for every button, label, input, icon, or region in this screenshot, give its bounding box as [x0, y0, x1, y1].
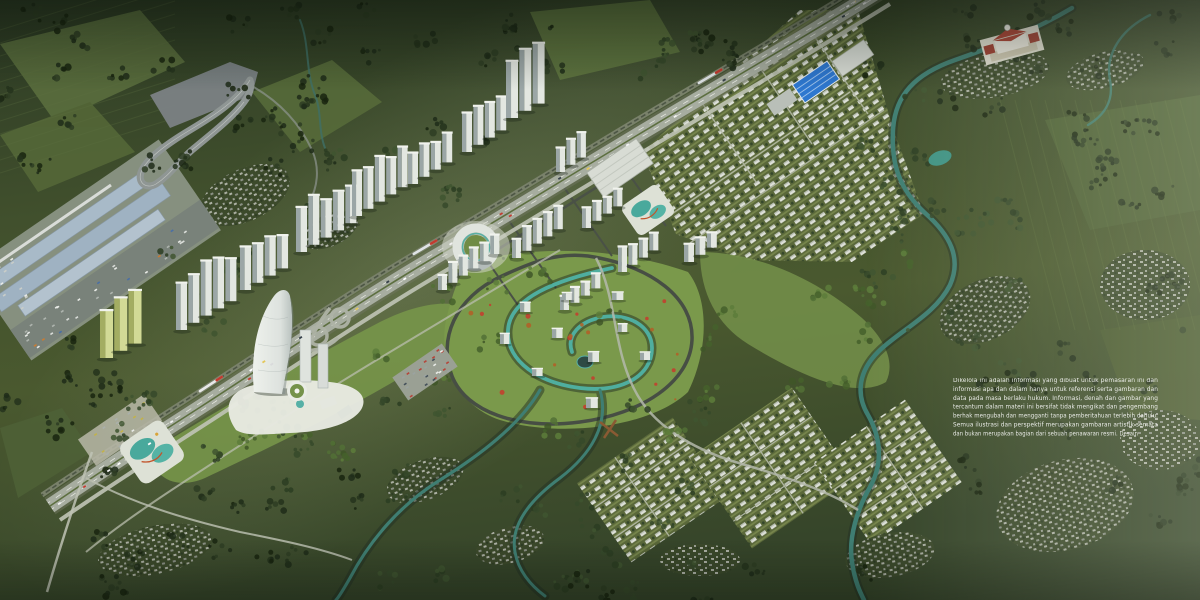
disclaimer-line: berhak mengubah dan mengganti tanpa pemb… — [953, 414, 1158, 420]
disclaimer-line: Semua ilustrasi dan perspektif merupakan… — [953, 423, 1158, 429]
disclaimer-line: Dikelola ini adalah informasi yang dibua… — [953, 378, 1158, 384]
disclaimer-line: dan bukan merupakan bagian dari sebuah p… — [953, 431, 1138, 437]
aerial-masterplan-render: Dikelola ini adalah informasi yang dibua… — [0, 0, 1200, 600]
disclaimer-line: data pada masa berlaku hukum. Informasi,… — [953, 396, 1158, 402]
disclaimer-line: tercantum dalam materi ini bersifat tida… — [953, 405, 1158, 411]
disclaimer-text-block: Dikelola ini adalah informasi yang dibua… — [953, 378, 1158, 437]
top-vignette — [0, 0, 1200, 90]
bottom-vignette — [0, 540, 1200, 600]
screenshot-root: Dikelola ini adalah informasi yang dibua… — [0, 0, 1200, 600]
disclaimer-line: informasi apa dan dalam hanya untuk refe… — [953, 387, 1158, 393]
